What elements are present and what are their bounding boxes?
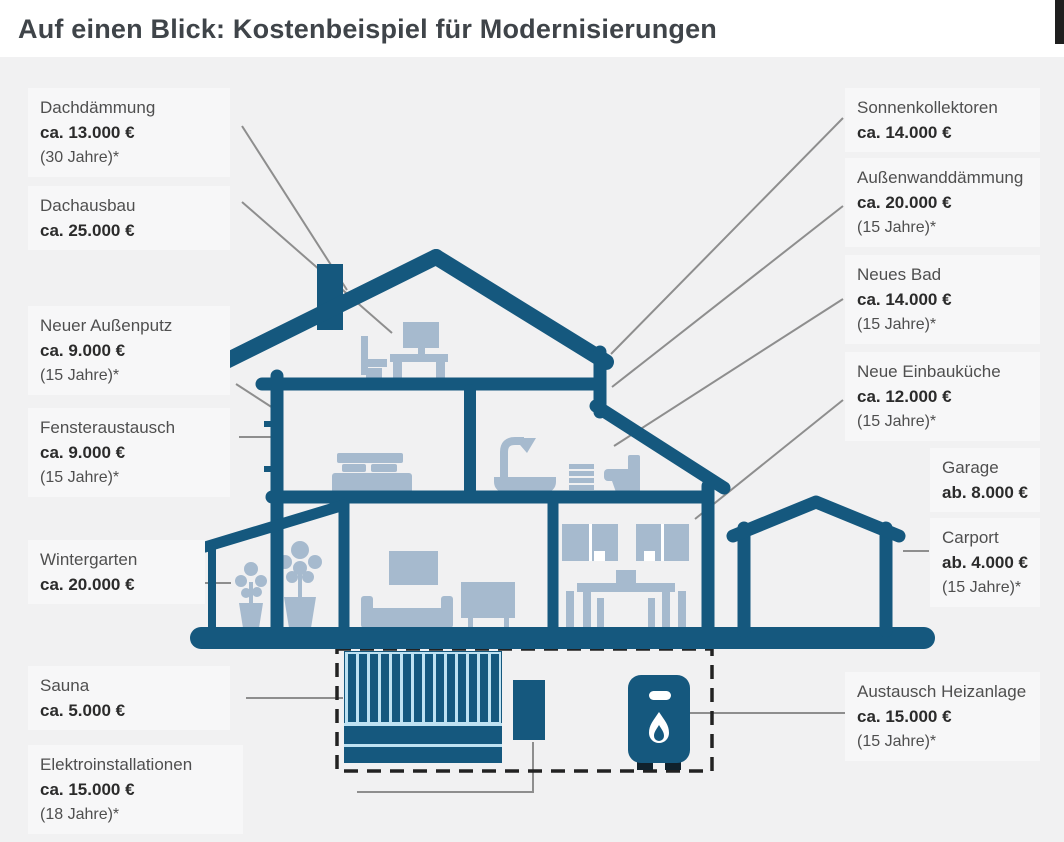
label-garage: Garage ab. 8.000 € (930, 448, 1040, 512)
label-years: (15 Jahre)* (40, 363, 218, 388)
window-sill-upper (264, 421, 277, 427)
attic-furniture (361, 322, 448, 378)
label-dachdaemmung: Dachdämmung ca. 13.000 € (30 Jahre)* (28, 88, 230, 177)
label-wintergarten: Wintergarten ca. 20.000 € (28, 540, 205, 604)
electro-box-illustration (513, 680, 545, 740)
bathroom-furniture (494, 438, 640, 495)
label-name: Carport (942, 525, 1028, 550)
line-aussenwanddaemmung (612, 206, 843, 387)
label-name: Neuer Außenputz (40, 313, 218, 338)
connector-lines (204, 118, 929, 792)
label-name: Sauna (40, 673, 218, 698)
bed-illustration (332, 453, 412, 494)
label-price: ca. 15.000 € (40, 777, 231, 802)
label-name: Austausch Heizanlage (857, 679, 1028, 704)
label-price: ca. 5.000 € (40, 698, 218, 723)
label-price: ca. 15.000 € (857, 704, 1028, 729)
label-price: ca. 13.000 € (40, 120, 218, 145)
label-name: Wintergarten (40, 547, 193, 572)
label-years: (15 Jahre)* (40, 465, 218, 490)
boiler-illustration (628, 675, 690, 770)
page-title: Auf einen Blick: Kostenbeispiel für Mode… (0, 0, 1064, 44)
label-years: (18 Jahre)* (40, 802, 231, 827)
label-name: Elektroinstallationen (40, 752, 231, 777)
title-bar: Auf einen Blick: Kostenbeispiel für Mode… (0, 0, 1064, 57)
label-name: Dachausbau (40, 193, 218, 218)
label-elektroinstallationen: Elektroinstallationen ca. 15.000 € (18 J… (28, 745, 243, 834)
line-neues-bad (614, 299, 843, 446)
label-name: Neue Einbauküche (857, 359, 1028, 384)
label-price: ca. 14.000 € (857, 120, 1028, 145)
sauna-illustration (344, 651, 502, 763)
line-sonnenkollektoren (611, 118, 843, 354)
label-heizanlage: Austausch Heizanlage ca. 15.000 € (15 Ja… (845, 672, 1040, 761)
furniture (235, 322, 689, 628)
label-years: (15 Jahre)* (857, 729, 1028, 754)
label-price: ab. 8.000 € (942, 480, 1028, 505)
label-years: (15 Jahre)* (857, 312, 1028, 337)
window-sill-lower (264, 466, 277, 472)
label-years: (30 Jahre)* (40, 145, 218, 170)
video-edge-artifact (1055, 0, 1064, 44)
label-name: Außenwanddämmung (857, 165, 1028, 190)
infographic-modernization-costs: Auf einen Blick: Kostenbeispiel für Mode… (0, 0, 1064, 842)
label-years: (15 Jahre)* (942, 575, 1028, 600)
label-fensteraustausch: Fensteraustausch ca. 9.000 € (15 Jahre)* (28, 408, 230, 497)
label-price: ca. 9.000 € (40, 440, 218, 465)
label-aussenwanddaemmung: Außenwanddämmung ca. 20.000 € (15 Jahre)… (845, 158, 1040, 247)
label-name: Neues Bad (857, 262, 1028, 287)
roof-right-slope (436, 257, 606, 362)
label-einbaukueche: Neue Einbauküche ca. 12.000 € (15 Jahre)… (845, 352, 1040, 441)
kitchen-furniture (562, 524, 689, 627)
label-name: Dachdämmung (40, 95, 218, 120)
label-price: ca. 14.000 € (857, 287, 1028, 312)
label-name: Sonnenkollektoren (857, 95, 1028, 120)
label-price: ab. 4.000 € (942, 550, 1028, 575)
label-name: Fensteraustausch (40, 415, 218, 440)
label-price: ca. 25.000 € (40, 218, 218, 243)
carport-structure (733, 502, 899, 631)
label-price: ca. 9.000 € (40, 338, 218, 363)
label-name: Garage (942, 455, 1028, 480)
label-price: ca. 20.000 € (40, 572, 193, 597)
label-carport: Carport ab. 4.000 € (15 Jahre)* (930, 518, 1040, 607)
label-years: (15 Jahre)* (857, 409, 1028, 434)
label-price: ca. 12.000 € (857, 384, 1028, 409)
label-aussenputz: Neuer Außenputz ca. 9.000 € (15 Jahre)* (28, 306, 230, 395)
label-years: (15 Jahre)* (857, 215, 1028, 240)
label-neues-bad: Neues Bad ca. 14.000 € (15 Jahre)* (845, 255, 1040, 344)
label-dachausbau: Dachausbau ca. 25.000 € (28, 186, 230, 250)
living-room-furniture (361, 551, 515, 628)
basement (337, 649, 712, 771)
label-sauna: Sauna ca. 5.000 € (28, 666, 230, 730)
label-sonnenkollektoren: Sonnenkollektoren ca. 14.000 € (845, 88, 1040, 152)
label-price: ca. 20.000 € (857, 190, 1028, 215)
